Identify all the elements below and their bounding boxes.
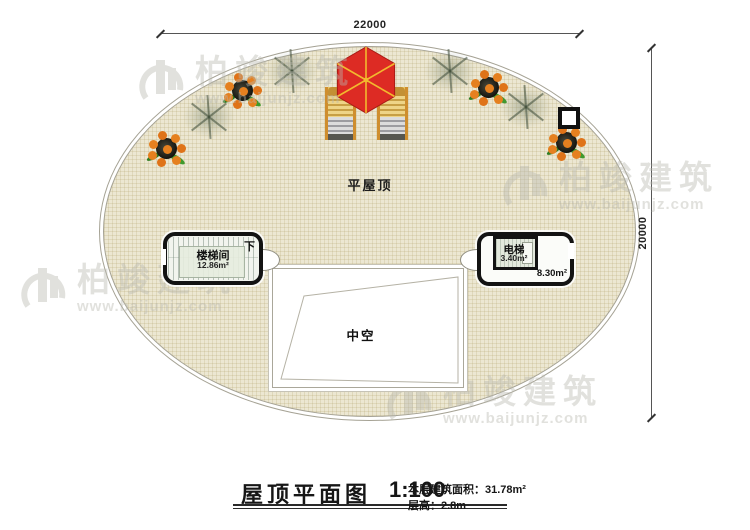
roof-area-label: 平屋顶: [331, 175, 409, 194]
brand-logo-icon: [20, 260, 68, 316]
floor-height-note: 层高：2.8m: [408, 497, 466, 513]
watermark-url: www.baijunjz.com: [443, 411, 603, 426]
dimension-value-top: 22000: [270, 19, 470, 31]
shrub-icon: [500, 86, 552, 128]
parasol-icon: [331, 45, 401, 115]
floor-area-note: 本层建筑面积：31.78m²: [408, 481, 526, 497]
dimension-tick-icon: [647, 43, 656, 52]
shrub-icon: [266, 50, 318, 92]
dimension-tick-icon: [575, 29, 584, 38]
stair-room: 楼梯间 12.86m² 下: [163, 232, 263, 285]
stair-direction-label: 下: [244, 238, 255, 254]
dimension-line-right: [651, 48, 652, 418]
shrub-icon: [424, 50, 476, 92]
dimension-value-right: 20000: [637, 198, 649, 268]
wall-opening: [568, 243, 574, 259]
dimension-tick-icon: [647, 413, 656, 422]
dimension-tick-icon: [156, 29, 165, 38]
elevator-shaft-area: 3.40m²: [487, 253, 541, 263]
potted-plant-icon: [146, 128, 188, 170]
void-opening: 中空: [272, 268, 464, 388]
roof-plan-drawing: 22000 20000 柏竣建筑 www.baijunjz.com 柏竣建筑 w…: [0, 0, 750, 530]
void-label: 中空: [273, 325, 449, 344]
elevator-room: 电梯 3.40m² 8.30m²: [477, 232, 574, 286]
wall-opening: [161, 249, 166, 265]
stair-room-area: 12.86m²: [167, 260, 259, 270]
dimension-line-top: [160, 33, 580, 34]
shrub-icon: [183, 96, 235, 138]
elevator-room-area: 8.30m²: [537, 268, 567, 279]
roof-vent-icon: [558, 107, 580, 129]
